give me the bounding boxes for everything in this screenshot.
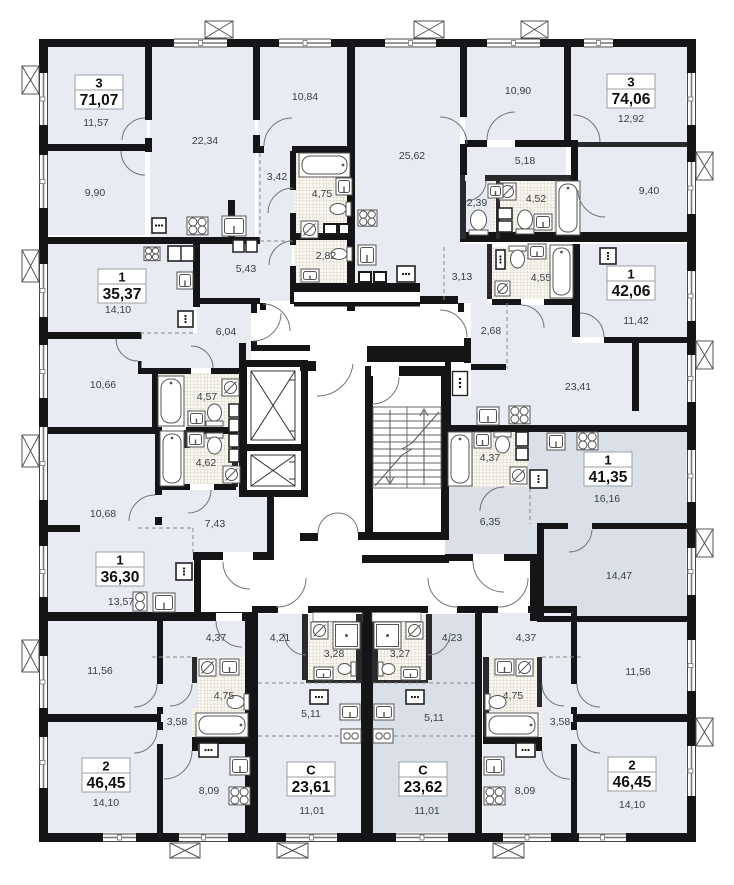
svg-text:2: 2 bbox=[628, 758, 635, 773]
svg-text:4,37: 4,37 bbox=[206, 632, 227, 644]
svg-text:42,06: 42,06 bbox=[612, 283, 651, 300]
svg-text:10,66: 10,66 bbox=[90, 379, 116, 391]
svg-text:1: 1 bbox=[627, 267, 634, 282]
svg-text:5,43: 5,43 bbox=[236, 263, 257, 275]
svg-text:3: 3 bbox=[95, 76, 102, 91]
svg-text:41,35: 41,35 bbox=[589, 469, 628, 486]
svg-text:4,55: 4,55 bbox=[531, 272, 552, 284]
svg-text:35,37: 35,37 bbox=[103, 286, 142, 303]
svg-text:3,58: 3,58 bbox=[167, 716, 188, 728]
svg-text:3,42: 3,42 bbox=[267, 171, 288, 183]
svg-text:22,34: 22,34 bbox=[192, 135, 218, 147]
svg-text:8,09: 8,09 bbox=[515, 785, 536, 797]
svg-text:23,61: 23,61 bbox=[292, 779, 331, 796]
svg-text:11,01: 11,01 bbox=[299, 805, 325, 817]
svg-text:36,30: 36,30 bbox=[101, 569, 140, 586]
svg-text:1: 1 bbox=[604, 453, 611, 468]
svg-text:C: C bbox=[418, 763, 428, 778]
svg-text:5,11: 5,11 bbox=[424, 712, 444, 724]
svg-text:1: 1 bbox=[118, 270, 125, 285]
svg-text:11,42: 11,42 bbox=[623, 315, 649, 327]
svg-text:46,45: 46,45 bbox=[87, 775, 126, 792]
svg-text:25,62: 25,62 bbox=[399, 150, 425, 162]
svg-text:5,11: 5,11 bbox=[301, 708, 321, 720]
svg-text:14,47: 14,47 bbox=[606, 570, 632, 582]
svg-text:10,84: 10,84 bbox=[292, 91, 318, 103]
svg-text:4,75: 4,75 bbox=[214, 690, 235, 702]
svg-text:11,56: 11,56 bbox=[87, 665, 113, 677]
svg-text:C: C bbox=[306, 763, 316, 778]
svg-text:4,75: 4,75 bbox=[503, 690, 524, 702]
svg-text:14,10: 14,10 bbox=[105, 304, 131, 316]
svg-text:10,68: 10,68 bbox=[90, 508, 116, 520]
svg-text:7,43: 7,43 bbox=[205, 518, 226, 530]
svg-text:1: 1 bbox=[116, 553, 123, 568]
svg-text:4,75: 4,75 bbox=[312, 188, 333, 200]
svg-text:11,01: 11,01 bbox=[414, 805, 440, 817]
svg-text:71,07: 71,07 bbox=[80, 92, 119, 109]
svg-text:3,13: 3,13 bbox=[452, 271, 473, 283]
svg-text:2,82: 2,82 bbox=[316, 250, 337, 262]
svg-text:9,90: 9,90 bbox=[85, 187, 106, 199]
svg-text:3,28: 3,28 bbox=[324, 648, 345, 660]
svg-text:14,10: 14,10 bbox=[93, 797, 119, 809]
svg-text:5,18: 5,18 bbox=[515, 155, 536, 167]
svg-text:6,04: 6,04 bbox=[216, 326, 237, 338]
svg-text:14,10: 14,10 bbox=[619, 799, 645, 811]
svg-text:4,52: 4,52 bbox=[526, 193, 547, 205]
svg-text:6,35: 6,35 bbox=[480, 516, 501, 528]
svg-text:2,39: 2,39 bbox=[467, 197, 488, 209]
svg-text:11,57: 11,57 bbox=[83, 117, 109, 129]
svg-text:74,06: 74,06 bbox=[612, 91, 651, 108]
svg-text:2,68: 2,68 bbox=[481, 325, 502, 337]
svg-text:2: 2 bbox=[102, 759, 109, 774]
svg-text:10,90: 10,90 bbox=[505, 85, 531, 97]
svg-text:4,62: 4,62 bbox=[196, 457, 217, 469]
svg-text:12,92: 12,92 bbox=[618, 113, 644, 125]
svg-text:23,62: 23,62 bbox=[404, 779, 443, 796]
svg-text:4,21: 4,21 bbox=[270, 632, 291, 644]
svg-text:13,57: 13,57 bbox=[108, 596, 134, 608]
svg-text:4,37: 4,37 bbox=[480, 452, 501, 464]
svg-text:23,41: 23,41 bbox=[565, 381, 591, 393]
svg-text:4,23: 4,23 bbox=[442, 632, 463, 644]
svg-text:4,37: 4,37 bbox=[516, 632, 537, 644]
svg-text:11,56: 11,56 bbox=[625, 666, 651, 678]
svg-text:4,57: 4,57 bbox=[197, 391, 218, 403]
svg-text:16,16: 16,16 bbox=[594, 493, 620, 505]
svg-text:46,45: 46,45 bbox=[613, 774, 652, 791]
svg-text:8,09: 8,09 bbox=[199, 785, 220, 797]
svg-text:9,40: 9,40 bbox=[639, 185, 660, 197]
svg-text:3,58: 3,58 bbox=[550, 716, 571, 728]
svg-text:3,27: 3,27 bbox=[390, 648, 411, 660]
svg-text:3: 3 bbox=[627, 75, 634, 90]
